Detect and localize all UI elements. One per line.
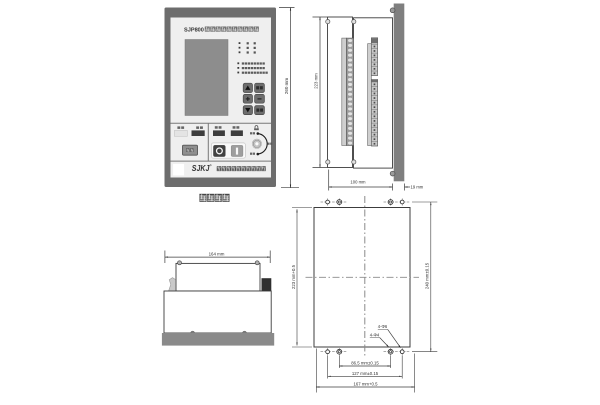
svg-text:167 mm+0.5: 167 mm+0.5 <box>353 382 378 387</box>
svg-text:240 mm±0.15: 240 mm±0.15 <box>425 262 430 289</box>
svg-text:260 mm: 260 mm <box>284 78 289 95</box>
svg-text:4-Φ4: 4-Φ4 <box>370 332 380 337</box>
svg-text:223 mm+0.5: 223 mm+0.5 <box>291 264 296 289</box>
svg-text:164 mm: 164 mm <box>209 252 225 257</box>
svg-text:4-Φ6: 4-Φ6 <box>378 324 388 329</box>
svg-text:127 mm±0.15: 127 mm±0.15 <box>352 371 379 376</box>
svg-text:100 mm: 100 mm <box>350 180 366 185</box>
svg-text:SJP800: SJP800 <box>184 27 204 33</box>
svg-text:223 mm: 223 mm <box>313 73 318 89</box>
svg-text:SJKJ: SJKJ <box>192 164 210 173</box>
svg-text:19 mm: 19 mm <box>411 185 424 190</box>
svg-text:86.5 mm±0.15: 86.5 mm±0.15 <box>351 361 379 366</box>
